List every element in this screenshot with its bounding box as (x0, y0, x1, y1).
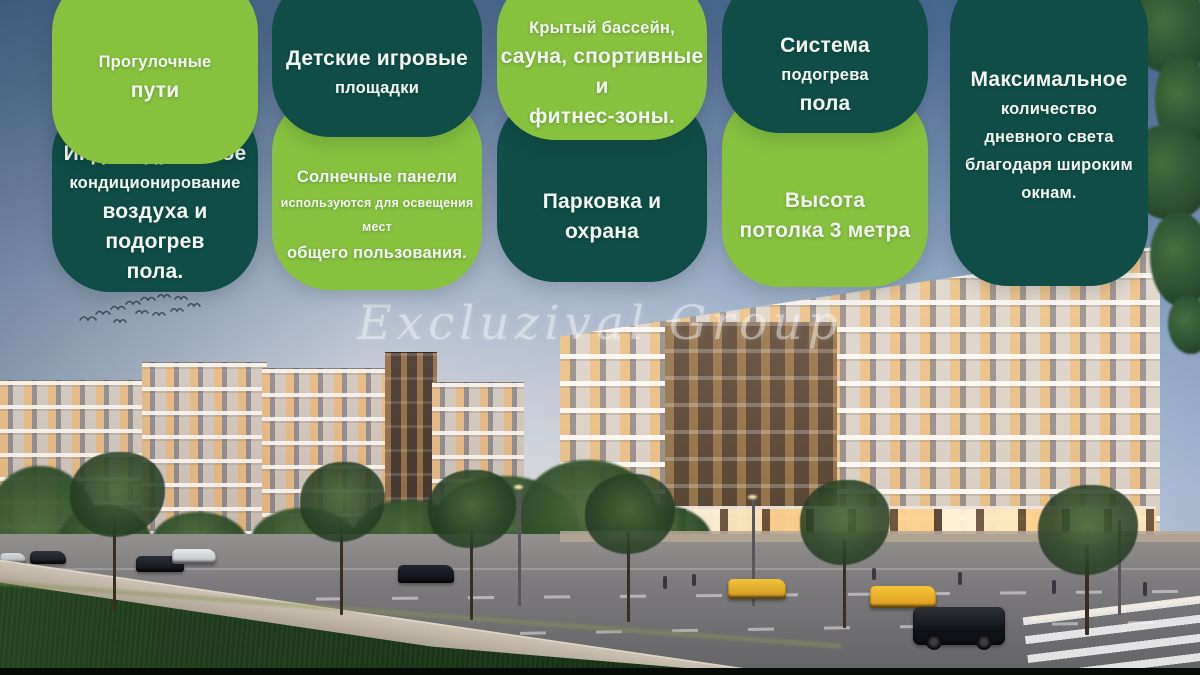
pedestrian (692, 574, 696, 586)
card-line: Детские игровые (286, 44, 468, 74)
card-line: Солнечные панели (297, 163, 457, 191)
pedestrian (872, 568, 876, 580)
feature-card-walking-paths: Прогулочные пути (52, 0, 258, 164)
card-line: кондиционирование (69, 169, 240, 197)
watermark: Excluzival Group (0, 296, 1200, 351)
car-yellow-taxi (728, 579, 786, 599)
feature-card-floor-heating: Система подогрева пола (722, 0, 928, 133)
pedestrian (1143, 582, 1147, 596)
card-line: площадки (335, 74, 419, 102)
card-line: Высота (785, 186, 865, 216)
card-line: сауна, спортивные и (497, 42, 707, 102)
card-line: пола (800, 89, 851, 119)
card-line: Максимальное (970, 65, 1127, 95)
card-line: пути (131, 76, 180, 106)
feature-card-playgrounds: Детские игровые площадки (272, 0, 482, 137)
suv-wheel (926, 634, 942, 650)
car-black-sedan (398, 565, 454, 583)
lamp-light (514, 485, 523, 489)
card-line: используются для освещения мест (272, 191, 482, 239)
lamp-post (518, 488, 521, 606)
card-line: потолка 3 метра (740, 216, 911, 246)
card-line: количество дневного света (964, 95, 1134, 151)
pedestrian (958, 572, 962, 585)
card-line: фитнес-зоны. (529, 102, 675, 132)
pedestrian (1052, 580, 1056, 594)
car-white-pickup (172, 549, 216, 564)
card-line: пола. (127, 257, 184, 287)
bottom-border (0, 668, 1200, 675)
suv-wheel (976, 634, 992, 650)
feature-card-daylight: Максимальное количество дневного света б… (950, 0, 1148, 286)
card-line: Крытый бассейн, (529, 14, 675, 42)
card-line: Система (780, 31, 870, 61)
card-line: Прогулочные (99, 48, 212, 76)
lamp-light (748, 495, 757, 499)
card-line: охрана (565, 217, 639, 247)
car-yellow-sportscar (870, 586, 936, 608)
card-line: воздуха и подогрев (52, 197, 258, 257)
card-line: общего пользования. (287, 239, 467, 267)
card-line: подогрева (781, 61, 868, 89)
real-estate-promo-slide: Excluzival Group Индивидуальное кондицио… (0, 0, 1200, 675)
feature-card-pool-fitness: Крытый бассейн, сауна, спортивные и фитн… (497, 0, 707, 140)
card-line: Парковка и (543, 187, 662, 217)
car-dark-suv (30, 551, 66, 564)
pedestrian (663, 576, 667, 589)
card-line: благодаря широким окнам. (964, 151, 1134, 207)
